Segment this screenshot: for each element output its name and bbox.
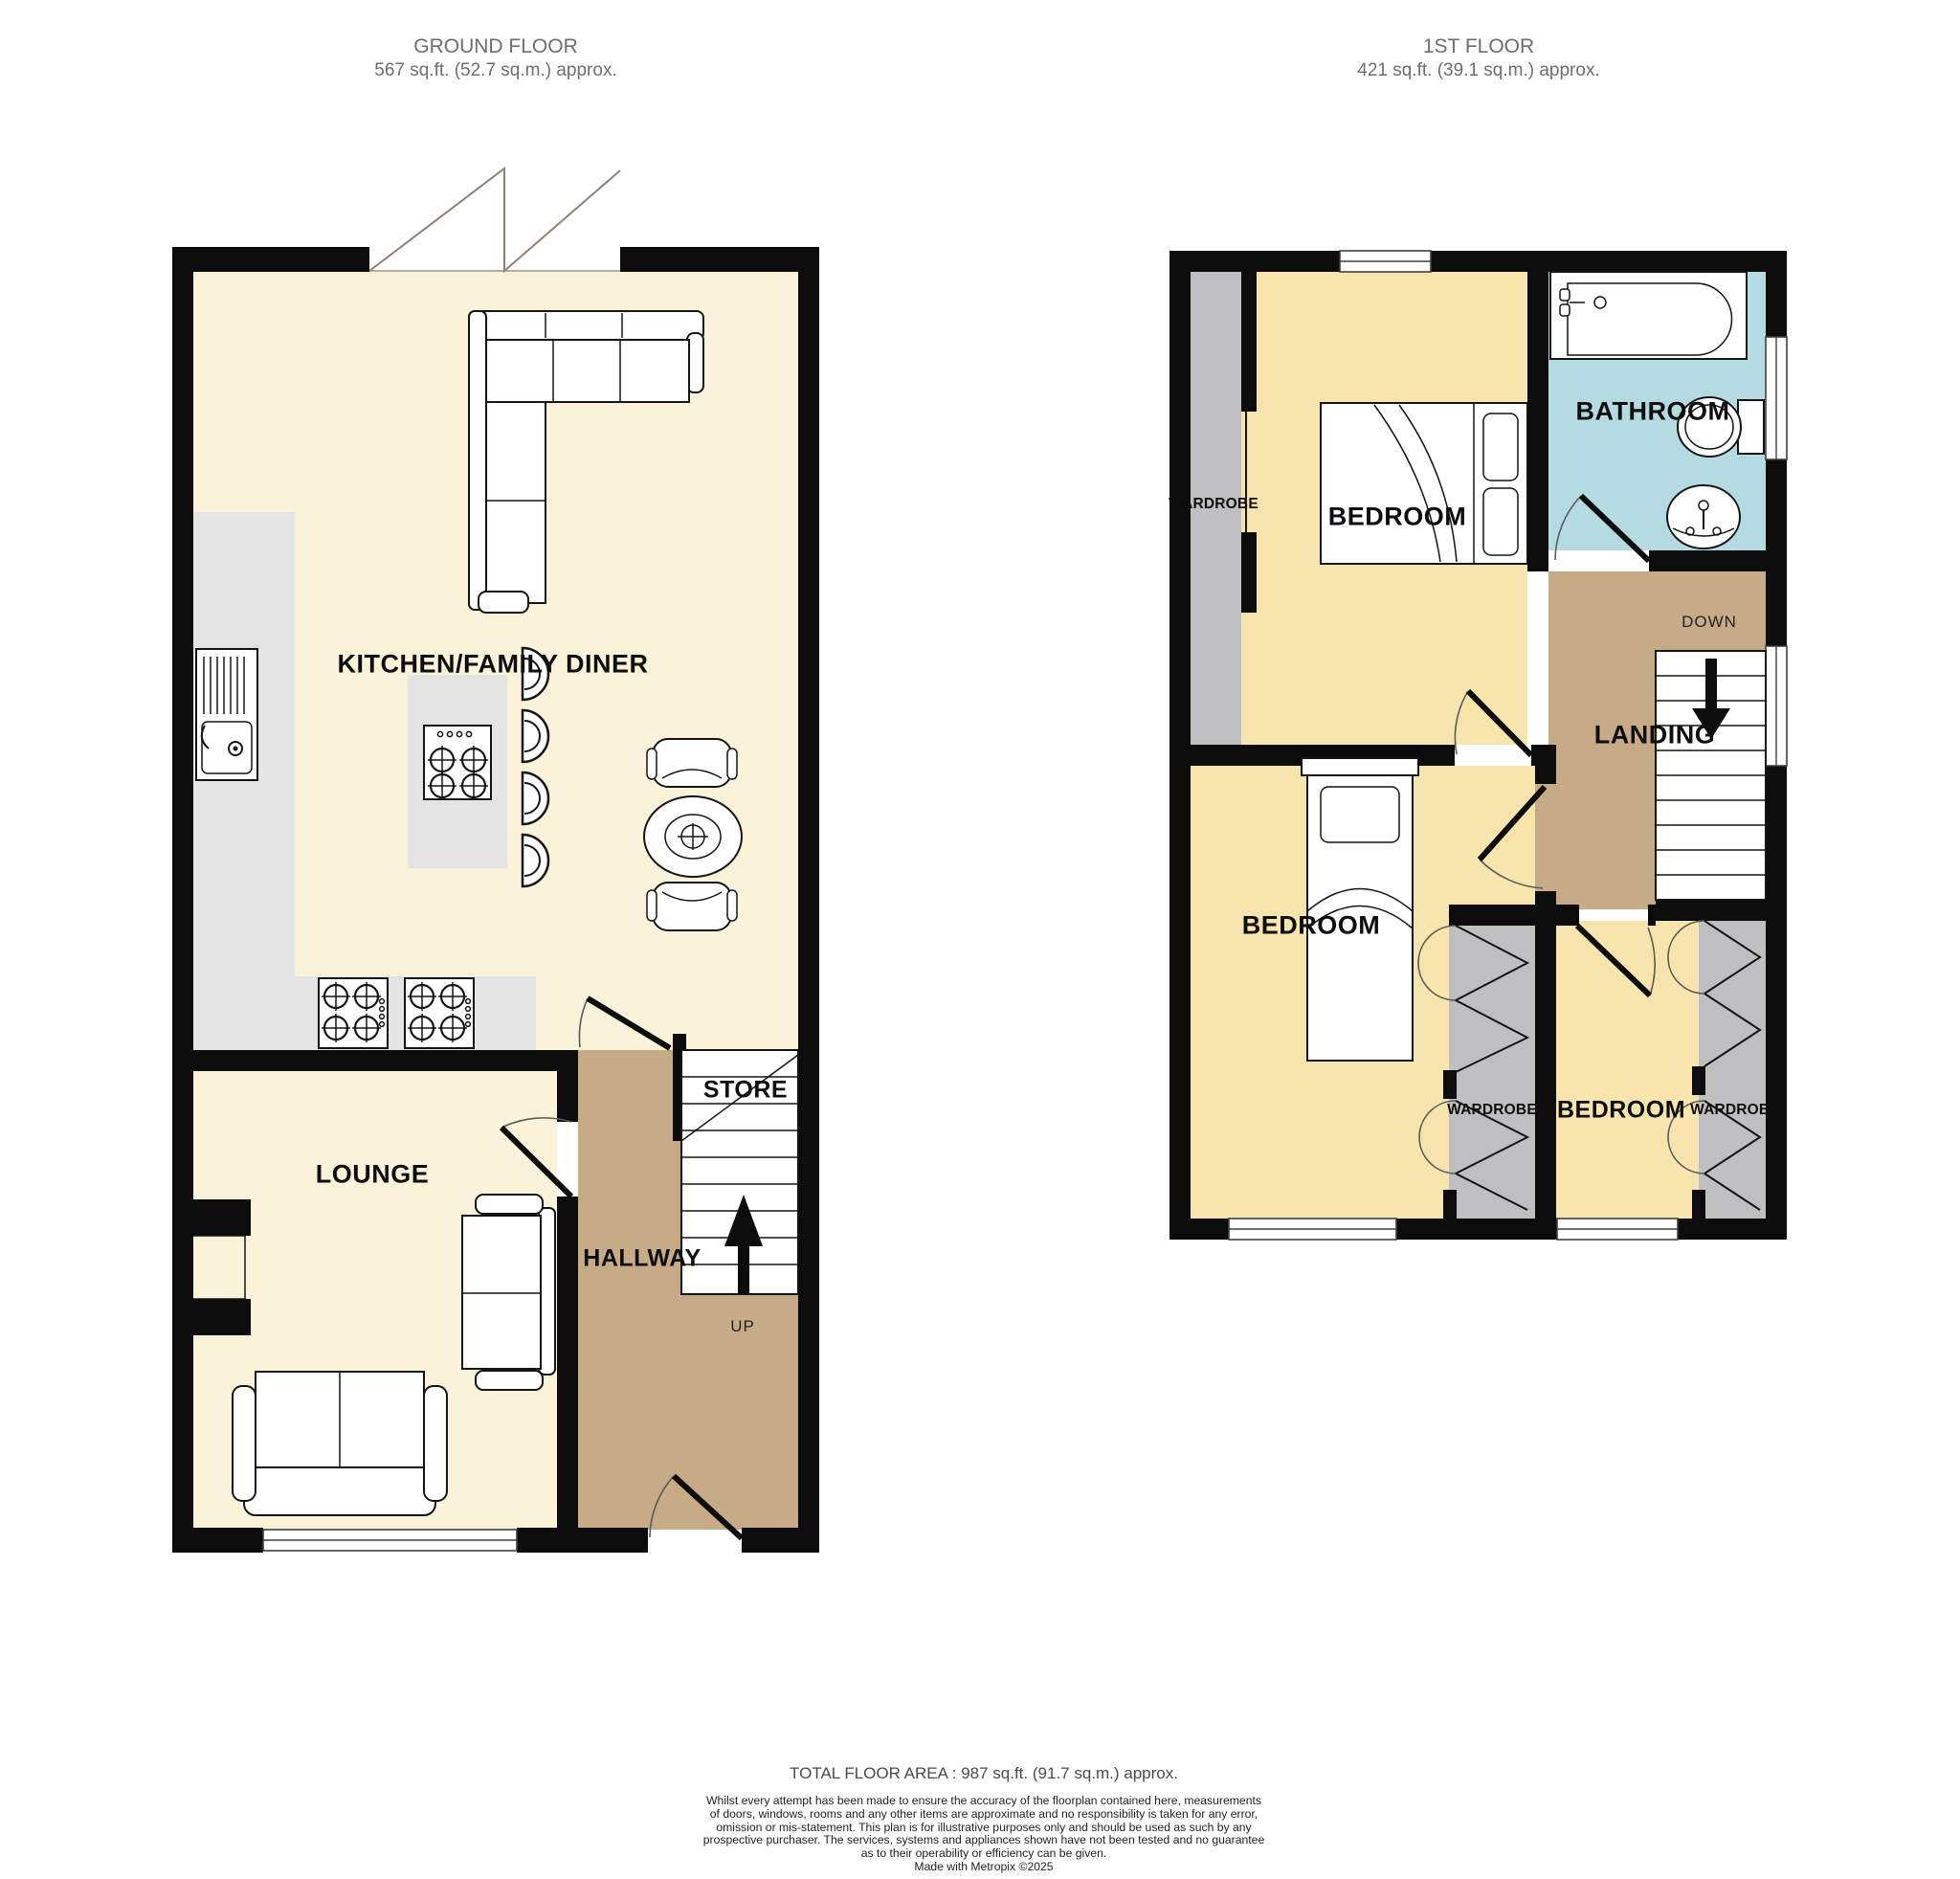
room-label-bedroom-right: BEDROOM bbox=[1557, 1097, 1685, 1125]
disclaimer-line: Whilst every attempt has been made to en… bbox=[703, 1795, 1265, 1808]
label-wardrobe-right: WARDROBE bbox=[1690, 1102, 1780, 1119]
floorplan-drawing bbox=[0, 0, 1960, 1879]
first-floor-header: 1ST FLOOR 421 sq.ft. (39.1 sq.m.) approx… bbox=[1357, 34, 1599, 82]
direction-label-up: UP bbox=[730, 1317, 755, 1336]
sofa-icon bbox=[462, 1195, 555, 1390]
disclaimer-line: as to their operability or efficiency ca… bbox=[703, 1847, 1265, 1861]
wardrobe-right bbox=[1699, 921, 1766, 1219]
label-wardrobe-left: WARDROBE bbox=[1447, 1102, 1537, 1119]
ground-floor-area: 567 sq.ft. (52.7 sq.m.) approx. bbox=[374, 59, 616, 82]
ground-floor-header: GROUND FLOOR 567 sq.ft. (52.7 sq.m.) app… bbox=[374, 34, 616, 82]
room-label-lounge: LOUNGE bbox=[316, 1160, 430, 1190]
disclaimer-line: of doors, windows, rooms and any other i… bbox=[703, 1808, 1265, 1822]
disclaimer-line: omission or mis-statement. This plan is … bbox=[703, 1822, 1265, 1835]
disclaimer-line: prospective purchaser. The services, sys… bbox=[703, 1834, 1265, 1847]
ground-floor-plan bbox=[172, 168, 819, 1553]
bifold-door-icon bbox=[369, 168, 620, 271]
label-wardrobe-top: WARDROBE bbox=[1169, 496, 1258, 513]
dining-table-icon bbox=[644, 739, 742, 930]
footer: TOTAL FLOOR AREA : 987 sq.ft. (91.7 sq.m… bbox=[703, 1764, 1265, 1874]
floorplan-page: GROUND FLOOR 567 sq.ft. (52.7 sq.m.) app… bbox=[0, 0, 1960, 1879]
room-label-landing: LANDING bbox=[1594, 721, 1716, 750]
metropix-credit: Made with Metropix ©2025 bbox=[703, 1861, 1265, 1874]
hob-icon bbox=[405, 978, 474, 1048]
room-label-bedroom-left: BEDROOM bbox=[1242, 911, 1381, 941]
chimney-breast bbox=[193, 1199, 251, 1236]
staircase-down bbox=[1656, 651, 1766, 900]
first-floor-title: 1ST FLOOR bbox=[1357, 34, 1599, 59]
ground-floor-title: GROUND FLOOR bbox=[374, 34, 616, 59]
single-bed-icon bbox=[1302, 758, 1418, 1061]
total-floor-area: TOTAL FLOOR AREA : 987 sq.ft. (91.7 sq.m… bbox=[703, 1764, 1265, 1783]
double-bed-icon bbox=[1321, 403, 1527, 564]
bathtub-icon bbox=[1550, 272, 1747, 359]
room-label-store: STORE bbox=[703, 1077, 788, 1105]
room-label-bathroom: BATHROOM bbox=[1576, 397, 1730, 427]
wardrobe-left bbox=[1449, 926, 1535, 1219]
sink-icon bbox=[1667, 485, 1740, 548]
island-hob-icon bbox=[424, 726, 491, 800]
room-label-kitchen: KITCHEN/FAMILY DINER bbox=[337, 650, 648, 680]
hob-icon bbox=[319, 978, 388, 1048]
disclaimer: Whilst every attempt has been made to en… bbox=[703, 1795, 1265, 1874]
room-label-bedroom-top: BEDROOM bbox=[1328, 503, 1467, 532]
first-floor-area: 421 sq.ft. (39.1 sq.m.) approx. bbox=[1357, 59, 1599, 82]
room-label-hallway: HALLWAY bbox=[583, 1245, 701, 1273]
bedroom-right-floor bbox=[1556, 921, 1699, 1219]
sofa-icon bbox=[233, 1372, 447, 1515]
direction-label-down: DOWN bbox=[1682, 613, 1737, 632]
kitchen-sink-icon bbox=[196, 649, 257, 780]
lounge-window bbox=[263, 1530, 517, 1551]
